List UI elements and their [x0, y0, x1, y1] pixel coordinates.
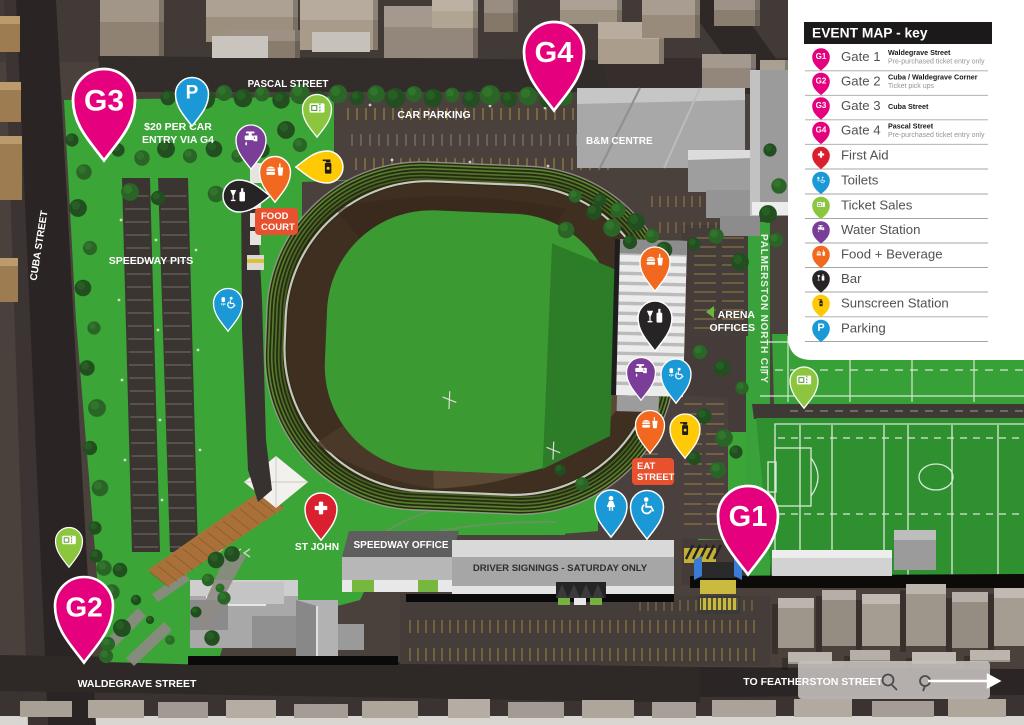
svg-text:PALMERSTON NORTH CITY: PALMERSTON NORTH CITY: [758, 234, 769, 384]
svg-text:Sunscreen Station: Sunscreen Station: [841, 296, 949, 311]
svg-text:G2: G2: [816, 77, 827, 86]
svg-text:ARENA: ARENA: [718, 309, 756, 321]
svg-text:G3: G3: [816, 101, 827, 110]
svg-text:G4: G4: [816, 126, 827, 135]
svg-text:FOOD: FOOD: [261, 211, 289, 222]
svg-text:Toilets: Toilets: [841, 173, 879, 188]
svg-text:SPEEDWAY PITS: SPEEDWAY PITS: [109, 255, 194, 267]
svg-text:Waldegrave Street: Waldegrave Street: [888, 48, 951, 57]
svg-text:Ticket pick ups: Ticket pick ups: [888, 83, 935, 90]
svg-text:Gate 2: Gate 2: [841, 74, 881, 89]
svg-text:PASCAL STREET: PASCAL STREET: [248, 79, 329, 90]
svg-text:Parking: Parking: [841, 321, 886, 336]
svg-text:B&M CENTRE: B&M CENTRE: [586, 136, 653, 147]
svg-text:G4: G4: [535, 37, 574, 69]
svg-text:Pre-purchased ticket entry onl: Pre-purchased ticket entry only: [888, 59, 985, 66]
svg-text:Pascal Street: Pascal Street: [888, 122, 934, 131]
svg-text:ENTRY VIA G4: ENTRY VIA G4: [142, 134, 214, 146]
svg-text:Food + Beverage: Food + Beverage: [841, 247, 943, 262]
svg-text:Bar: Bar: [841, 271, 862, 286]
svg-text:First Aid: First Aid: [841, 148, 889, 163]
svg-text:DRIVER SIGNINGS - SATURDAY ONL: DRIVER SIGNINGS - SATURDAY ONLY: [473, 563, 648, 574]
svg-text:ST JOHN: ST JOHN: [295, 542, 339, 553]
svg-text:P: P: [817, 322, 824, 334]
svg-text:OFFICES: OFFICES: [709, 322, 755, 334]
svg-text:SPEEDWAY OFFICE: SPEEDWAY OFFICE: [353, 540, 448, 551]
svg-text:Water Station: Water Station: [841, 222, 920, 237]
svg-text:Ticket Sales: Ticket Sales: [841, 198, 913, 213]
svg-text:WALDEGRAVE STREET: WALDEGRAVE STREET: [78, 678, 197, 690]
svg-text:COURT: COURT: [261, 222, 295, 233]
svg-text:G1: G1: [816, 52, 827, 61]
svg-text:Pre-purchased ticket entry onl: Pre-purchased ticket entry only: [888, 132, 985, 139]
svg-text:Gate 1: Gate 1: [841, 49, 881, 64]
svg-text:Gate 3: Gate 3: [841, 98, 881, 113]
svg-text:Cuba / Waldegrave Corner: Cuba / Waldegrave Corner: [888, 73, 978, 82]
svg-text:CAR PARKING: CAR PARKING: [397, 109, 470, 121]
svg-text:G3: G3: [84, 85, 124, 118]
svg-text:EVENT MAP - key: EVENT MAP - key: [812, 26, 928, 41]
svg-text:Gate 4: Gate 4: [841, 123, 881, 138]
svg-text:G1: G1: [729, 501, 768, 533]
svg-text:Cuba Street: Cuba Street: [888, 102, 929, 111]
svg-text:EAT: EAT: [637, 461, 655, 472]
svg-text:G2: G2: [65, 592, 102, 623]
svg-text:P: P: [186, 83, 199, 104]
svg-text:TO FEATHERSTON STREET: TO FEATHERSTON STREET: [743, 676, 883, 688]
svg-text:$20 PER CAR: $20 PER CAR: [144, 121, 212, 133]
svg-text:STREET: STREET: [637, 472, 675, 483]
